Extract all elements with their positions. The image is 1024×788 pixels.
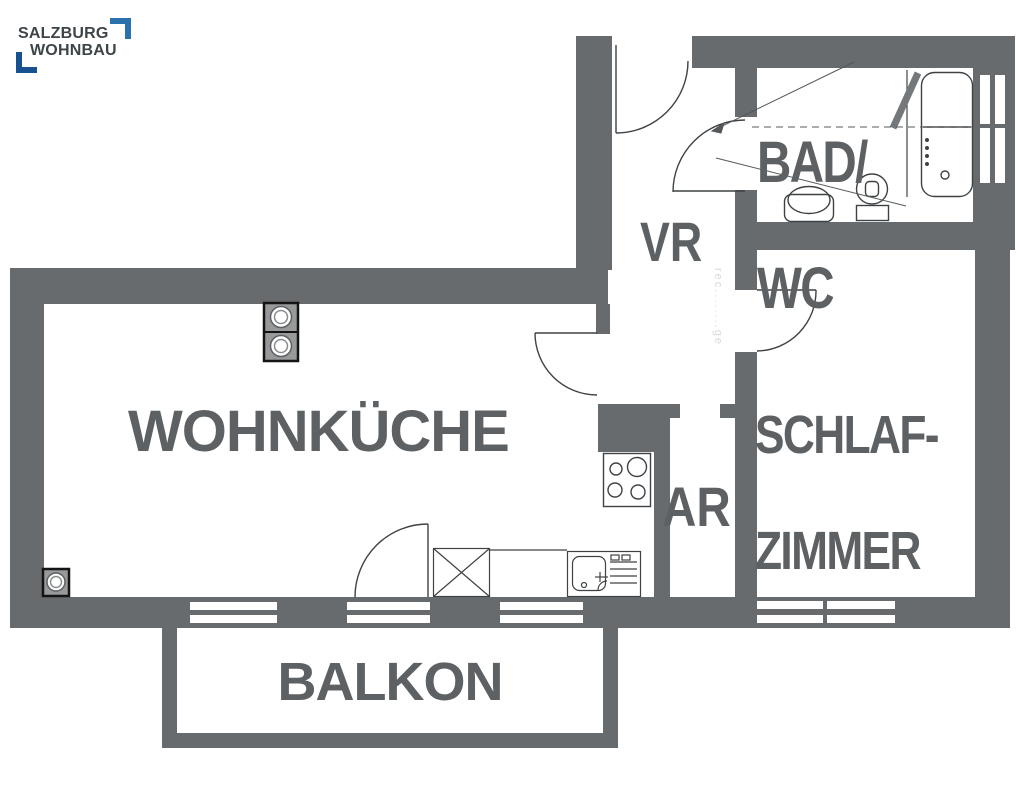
room-label-schlaf-line2: ZIMMER xyxy=(755,521,920,581)
room-label-bad-line2: WC xyxy=(757,256,833,321)
bathroom-window-divider xyxy=(978,124,1007,128)
room-label-vr: VR xyxy=(640,213,702,272)
kitchen-window xyxy=(190,602,277,610)
bedroom-window-divider xyxy=(823,601,827,623)
wall-vr-west xyxy=(576,36,612,270)
appliance-column xyxy=(264,303,298,361)
room-label-bad-line1: BAD/ xyxy=(757,130,867,195)
ar-door-jamb xyxy=(720,404,735,418)
floor-plan: SALZBURG WOHNBAU xyxy=(0,0,1024,788)
logo-text-line1: SALZBURG xyxy=(18,25,108,43)
entrance-door xyxy=(616,45,688,133)
wall-vr-bad-upper xyxy=(735,68,757,117)
room-label-bad-wc: BAD/ WC xyxy=(757,68,867,320)
kitchen-window xyxy=(500,615,583,623)
logo-text-line2: WOHNBAU xyxy=(30,42,117,60)
kitchen-sink xyxy=(568,552,641,597)
salzburg-wohnbau-logo: SALZBURG WOHNBAU xyxy=(16,16,146,72)
wall-vr-schlaf-lower xyxy=(735,352,757,597)
room-label-schlafzimmer: SCHLAF- ZIMMER xyxy=(755,348,938,580)
corner-appliance xyxy=(43,569,69,596)
room-label-balkon: BALKON xyxy=(162,654,618,711)
roof-slope-mark xyxy=(893,73,918,128)
wall-schlaf-east xyxy=(975,250,1010,628)
wall-stub-kitchen-door xyxy=(596,304,610,334)
kitchen-window xyxy=(500,602,583,610)
bathtub xyxy=(922,73,973,197)
wall-left xyxy=(10,268,44,628)
balcony-door-opening xyxy=(347,615,430,623)
watermark-text: rec........ge xyxy=(712,268,724,346)
wall-kitchen-top xyxy=(10,268,608,304)
bathroom-door xyxy=(673,120,745,192)
logo-corner-bracket-icon xyxy=(110,18,131,39)
wall-kitchen-ar-corner xyxy=(598,404,656,452)
stove-hob xyxy=(604,454,651,507)
kitchen-door xyxy=(535,333,597,395)
wall-vr-bad-lower xyxy=(735,190,757,222)
wall-top xyxy=(692,36,1015,68)
room-label-ar: AR xyxy=(662,478,731,537)
balcony-door-opening xyxy=(347,602,430,610)
bathroom-window xyxy=(995,75,1005,183)
room-label-schlaf-line1: SCHLAF- xyxy=(755,405,938,465)
ar-door-jamb xyxy=(668,404,680,418)
kitchen-window xyxy=(190,615,277,623)
room-label-wohnkueche: WOHNKÜCHE xyxy=(128,402,509,463)
balcony-wall-bottom xyxy=(162,733,618,748)
crossed-cabinet xyxy=(434,549,490,597)
balcony-door xyxy=(355,524,428,597)
bathroom-window xyxy=(980,75,990,183)
